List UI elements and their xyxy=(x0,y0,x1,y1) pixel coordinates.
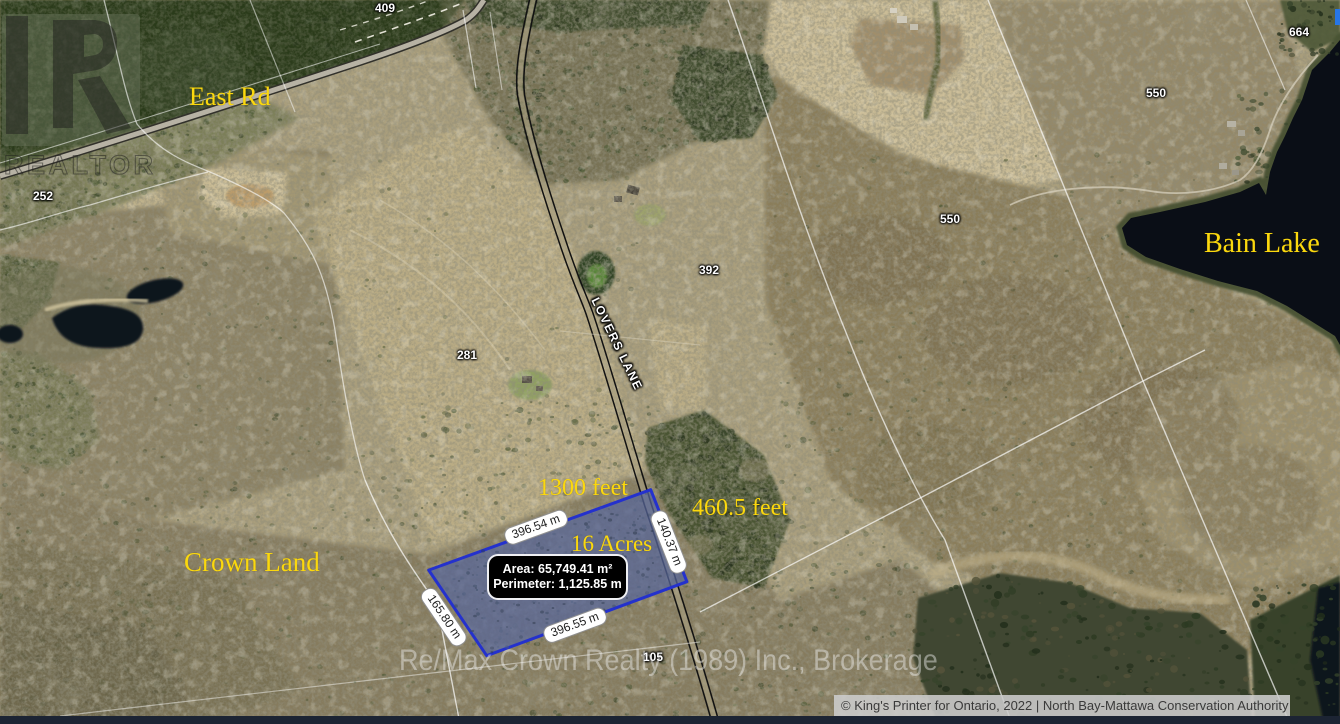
svg-text:REALTOR: REALTOR xyxy=(4,150,157,180)
